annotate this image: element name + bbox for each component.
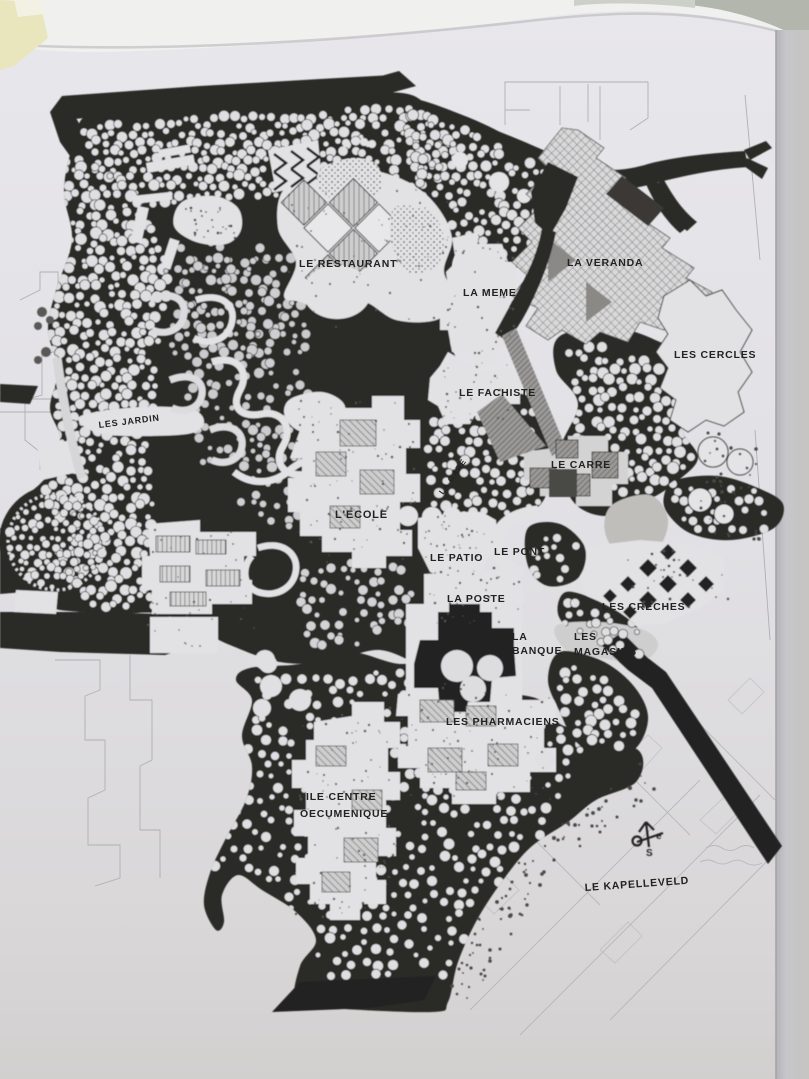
- svg-text:LA: LA: [512, 631, 528, 643]
- svg-text:LES CERCLES: LES CERCLES: [674, 349, 756, 361]
- svg-text:L'ECOLE: L'ECOLE: [335, 509, 388, 521]
- svg-text:OECUMENIQUE: OECUMENIQUE: [300, 808, 388, 820]
- svg-text:LES PHARMACIENS: LES PHARMACIENS: [446, 716, 560, 728]
- svg-text:BANQUE: BANQUE: [512, 645, 562, 657]
- svg-text:LES: LES: [574, 631, 597, 643]
- svg-text:LE RESTAURANT: LE RESTAURANT: [299, 258, 397, 270]
- svg-text:S: S: [646, 848, 653, 859]
- svg-text:ILE CENTRE: ILE CENTRE: [306, 791, 376, 803]
- svg-text:LA VERANDA: LA VERANDA: [567, 257, 643, 269]
- svg-text:LE PONT: LE PONT: [494, 546, 545, 558]
- svg-text:LA MEME: LA MEME: [463, 287, 517, 299]
- svg-text:LE PATIO: LE PATIO: [430, 552, 483, 564]
- svg-text:LE FACHISTE: LE FACHISTE: [459, 387, 536, 399]
- svg-text:LA POSTE: LA POSTE: [447, 593, 506, 605]
- svg-text:e: e: [656, 831, 662, 842]
- svg-text:MAGASINS: MAGASINS: [574, 646, 637, 658]
- svg-text:LES CRECHES: LES CRECHES: [602, 601, 685, 613]
- svg-text:LE CARRE: LE CARRE: [551, 459, 611, 471]
